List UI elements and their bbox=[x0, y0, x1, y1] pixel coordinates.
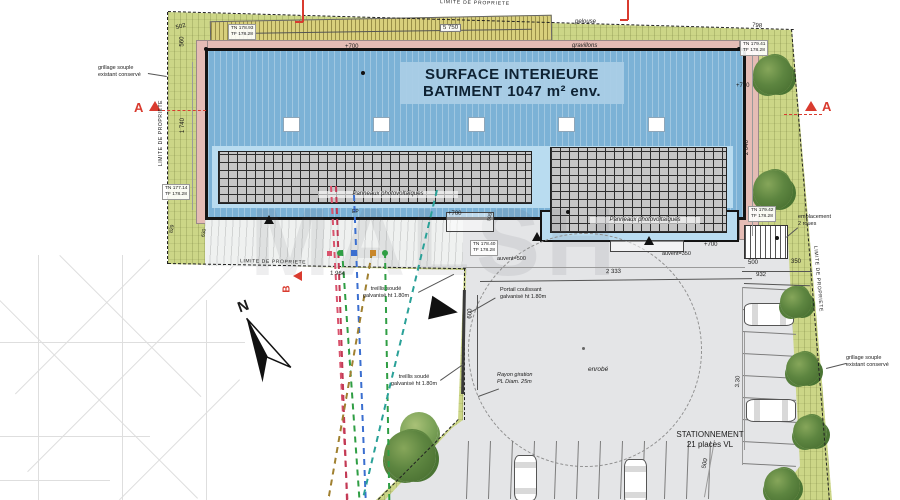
skylight bbox=[648, 117, 665, 132]
dim-2040: 2 040 bbox=[744, 140, 751, 155]
utility-marker bbox=[351, 250, 357, 256]
auvent-500-label: auvent=500 bbox=[497, 256, 526, 263]
section-b-label: B bbox=[282, 285, 294, 292]
portail-line1: Portail coulissant bbox=[500, 287, 570, 294]
property-line-label-west: LIMITE DE PROPRIETE bbox=[158, 83, 164, 183]
utility-marker bbox=[337, 250, 343, 256]
tree bbox=[764, 468, 800, 500]
level-tn: TN 178.93 bbox=[231, 26, 253, 32]
dim-plus700: +700 bbox=[736, 83, 750, 90]
rayon-line2: PL Diam. 25m bbox=[497, 379, 557, 386]
section-cut-mark bbox=[295, 21, 303, 23]
building-title-panel: SURFACE INTERIEURE BATIMENT 1047 m² env. bbox=[400, 62, 624, 104]
rayon-line1: Rayon giration bbox=[497, 372, 557, 379]
dim-600: 600 bbox=[467, 309, 474, 319]
tree bbox=[786, 352, 820, 386]
grillage-line2: existant conservé bbox=[98, 72, 152, 79]
level-marker: TN 179.42 TF 178.28 bbox=[748, 206, 776, 222]
section-a-triangle-icon bbox=[805, 101, 817, 111]
dim-932: 932 bbox=[756, 272, 766, 280]
bike-parking-box bbox=[744, 225, 788, 259]
door-marker-icon bbox=[644, 236, 654, 245]
dim-560: 560 bbox=[179, 37, 186, 47]
dim-line-500-350 bbox=[742, 271, 812, 272]
car bbox=[624, 459, 647, 500]
treillis-note-1: treillis soudé galvanisé ht 1.80m bbox=[352, 286, 420, 300]
level-tn: TN 179.41 bbox=[743, 42, 765, 48]
leader-line bbox=[826, 363, 847, 369]
grillage-note-left: grillage souple existant conservé bbox=[98, 65, 152, 79]
emplacement-note: emplacement 2 roues bbox=[798, 214, 846, 228]
section-a-cutline bbox=[784, 114, 822, 115]
sketch-line bbox=[206, 300, 207, 500]
parking-line2: 21 places VL bbox=[650, 440, 770, 450]
yard-edge-line bbox=[463, 267, 745, 268]
grillage-line2: existant conservé bbox=[846, 362, 900, 369]
treillis-line1: treillis soudé bbox=[352, 286, 420, 293]
utility-marker bbox=[370, 250, 376, 256]
gravel-label: gravillons bbox=[572, 43, 597, 50]
skylight bbox=[283, 117, 300, 132]
dim-500: 500 bbox=[748, 260, 758, 267]
grillage-note-right: grillage souple existant conservé bbox=[846, 355, 900, 369]
tree bbox=[780, 286, 812, 318]
level-tf: TF 178.28 bbox=[231, 32, 253, 38]
dim-5750: 5 750 bbox=[440, 24, 461, 32]
property-line-label-north: LIMITE DE PROPRIETE bbox=[440, 0, 510, 7]
utility-marker bbox=[327, 251, 332, 256]
tree bbox=[384, 430, 436, 482]
level-tf: TF 178.28 bbox=[473, 248, 495, 254]
section-b-triangle-icon bbox=[293, 271, 302, 281]
emplacement-line2: 2 roues bbox=[798, 221, 846, 228]
level-tn: TN 178.40 bbox=[473, 242, 495, 248]
emplacement-line1: emplacement bbox=[798, 214, 846, 221]
survey-point bbox=[775, 236, 779, 240]
section-cut-mark bbox=[627, 0, 629, 20]
grillage-line1: grillage souple bbox=[846, 355, 900, 362]
survey-point bbox=[566, 210, 570, 214]
level-tf: TF 178.28 bbox=[165, 192, 187, 198]
level-marker: TN 179.41 TF 178.28 bbox=[740, 40, 768, 56]
dim-plus700: +700 bbox=[448, 211, 462, 218]
skylight bbox=[468, 117, 485, 132]
tree bbox=[753, 55, 793, 95]
dim-350: 350 bbox=[791, 259, 801, 266]
door-marker-icon bbox=[264, 215, 274, 224]
sketch-line bbox=[0, 436, 150, 437]
level-marker: TN 177.14 TF 178.28 bbox=[162, 184, 190, 200]
circle-center-dot bbox=[582, 347, 585, 350]
dim-line-600 bbox=[477, 295, 478, 390]
dim-330: 3.30 bbox=[735, 376, 743, 388]
level-tf: TF 178.28 bbox=[743, 48, 765, 54]
treillis-note-2: treillis soudé galvanisé ht 1.80m bbox=[380, 374, 448, 388]
door-marker-icon bbox=[532, 232, 542, 241]
section-a-label-left: A bbox=[134, 100, 143, 116]
building-title-line1: SURFACE INTERIEURE bbox=[406, 66, 618, 83]
asphalt-label: enrobé bbox=[588, 366, 608, 374]
dim-798: 798 bbox=[752, 22, 763, 30]
sketch-line bbox=[0, 480, 110, 481]
tree bbox=[753, 170, 793, 210]
sketch-line bbox=[0, 342, 245, 343]
survey-point bbox=[361, 71, 365, 75]
ep-label: EP bbox=[352, 209, 359, 215]
survey-point bbox=[204, 47, 208, 51]
level-tf: TF 178.28 bbox=[751, 214, 773, 220]
portail-note: Portail coulissant galvanisé ht 1.80m bbox=[500, 287, 570, 301]
section-a-label-right: A bbox=[822, 99, 831, 115]
car bbox=[746, 399, 796, 422]
treillis-line2: galvanisé ht 1.80m bbox=[352, 293, 420, 300]
dim-plus700: +700 bbox=[345, 44, 359, 51]
dim-2333: 2 333 bbox=[606, 269, 621, 276]
sketch-line bbox=[27, 259, 240, 472]
treillis-line2: galvanisé ht 1.80m bbox=[380, 381, 448, 388]
dim-line-1740 bbox=[192, 62, 193, 210]
rayon-note: Rayon giration PL Diam. 25m bbox=[497, 372, 557, 386]
dim-1740: 1 740 bbox=[180, 118, 187, 133]
sketch-line bbox=[38, 255, 39, 500]
section-cut-mark bbox=[302, 0, 304, 22]
treillis-line1: treillis soudé bbox=[380, 374, 448, 381]
parking-title: STATIONNEMENT 21 places VL bbox=[650, 430, 770, 451]
parking-line1: STATIONNEMENT bbox=[650, 430, 770, 440]
car bbox=[514, 455, 537, 500]
auvent-350-label: auvent=350 bbox=[662, 251, 691, 258]
grillage-line1: grillage souple bbox=[98, 65, 152, 72]
site-plan: SURFACE INTERIEURE BATIMENT 1047 m² env.… bbox=[0, 0, 900, 500]
building-title-line2: BATIMENT 1047 m² env. bbox=[406, 83, 618, 100]
property-line-west bbox=[167, 12, 168, 264]
portail-line2: galvanisé ht 1.80m bbox=[500, 294, 570, 301]
level-tn: TN 179.42 bbox=[751, 208, 773, 214]
section-cut-mark bbox=[620, 19, 628, 21]
section-a-cutline bbox=[162, 110, 206, 111]
skylight bbox=[558, 117, 575, 132]
dim-plus700: +700 bbox=[704, 242, 718, 249]
level-tn: TN 177.14 bbox=[165, 186, 187, 192]
level-marker: TN 178.93 TF 178.28 bbox=[228, 24, 256, 40]
utility-marker bbox=[382, 250, 388, 256]
entrance-arrow-icon bbox=[428, 296, 460, 324]
dim-1964: 1 964 bbox=[330, 271, 345, 279]
skylight bbox=[373, 117, 390, 132]
lawn-label: pelouse bbox=[575, 19, 596, 26]
level-marker: TN 178.40 TF 178.28 bbox=[470, 240, 498, 256]
